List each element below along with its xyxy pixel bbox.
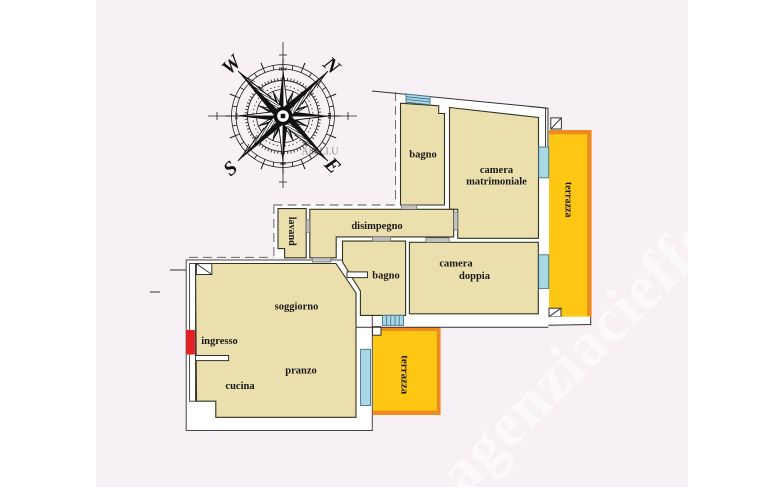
svg-text:lavand: lavand [286,217,297,246]
svg-text:disimpegno: disimpegno [351,221,402,232]
svg-text:ingresso: ingresso [201,336,238,347]
svg-text:camera: camera [439,259,473,270]
svg-text:terrazza: terrazza [563,182,574,218]
svg-text:soggiorno: soggiorno [275,302,319,313]
svg-text:bagno: bagno [372,271,399,282]
svg-text:matrimoniale: matrimoniale [466,177,527,188]
svg-text:ne: ne [326,113,333,120]
svg-text:sw: sw [233,112,240,120]
svg-text:pranzo: pranzo [285,366,317,377]
svg-text:terrazza: terrazza [399,355,411,395]
svg-text:nw: nw [279,66,288,73]
svg-text:camera: camera [480,165,514,176]
svg-text:bagno: bagno [409,150,436,161]
svg-text:se: se [280,160,286,167]
svg-text:doppia: doppia [459,271,491,282]
svg-text:cucina: cucina [225,381,255,392]
